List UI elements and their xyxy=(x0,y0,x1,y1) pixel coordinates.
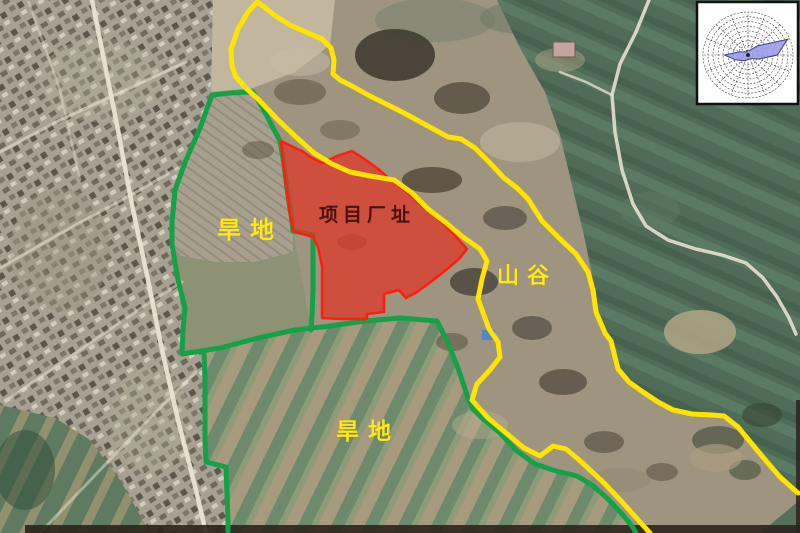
satellite-map: 项目厂址旱地旱地山谷 xyxy=(0,0,800,533)
wind-rose-inset xyxy=(0,0,800,533)
